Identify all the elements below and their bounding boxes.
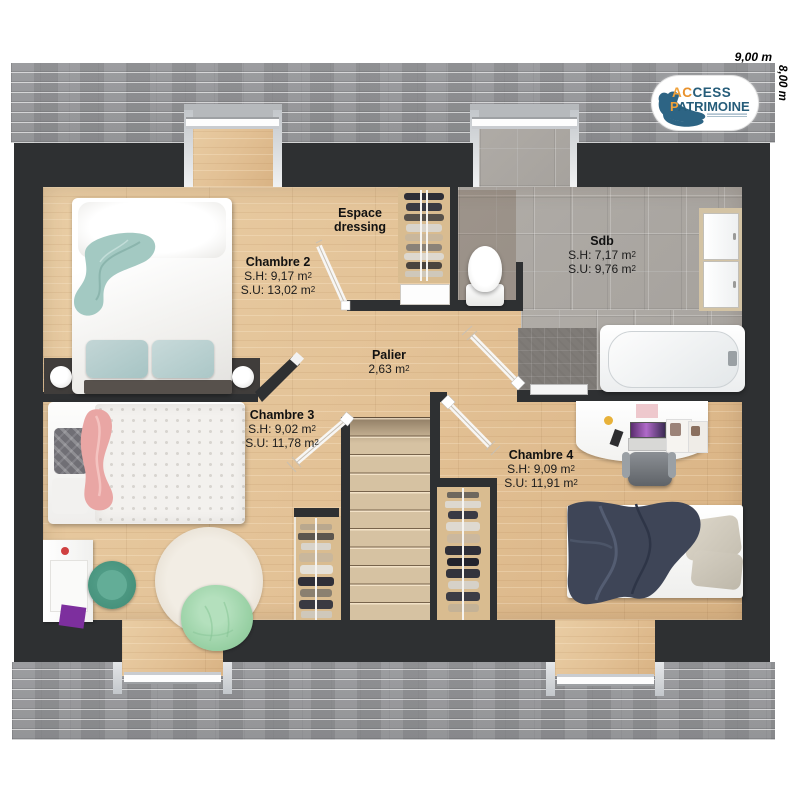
svg-text:ACCESS: ACCESS	[672, 85, 731, 100]
svg-text:PATRIMOINE: PATRIMOINE	[670, 99, 750, 114]
